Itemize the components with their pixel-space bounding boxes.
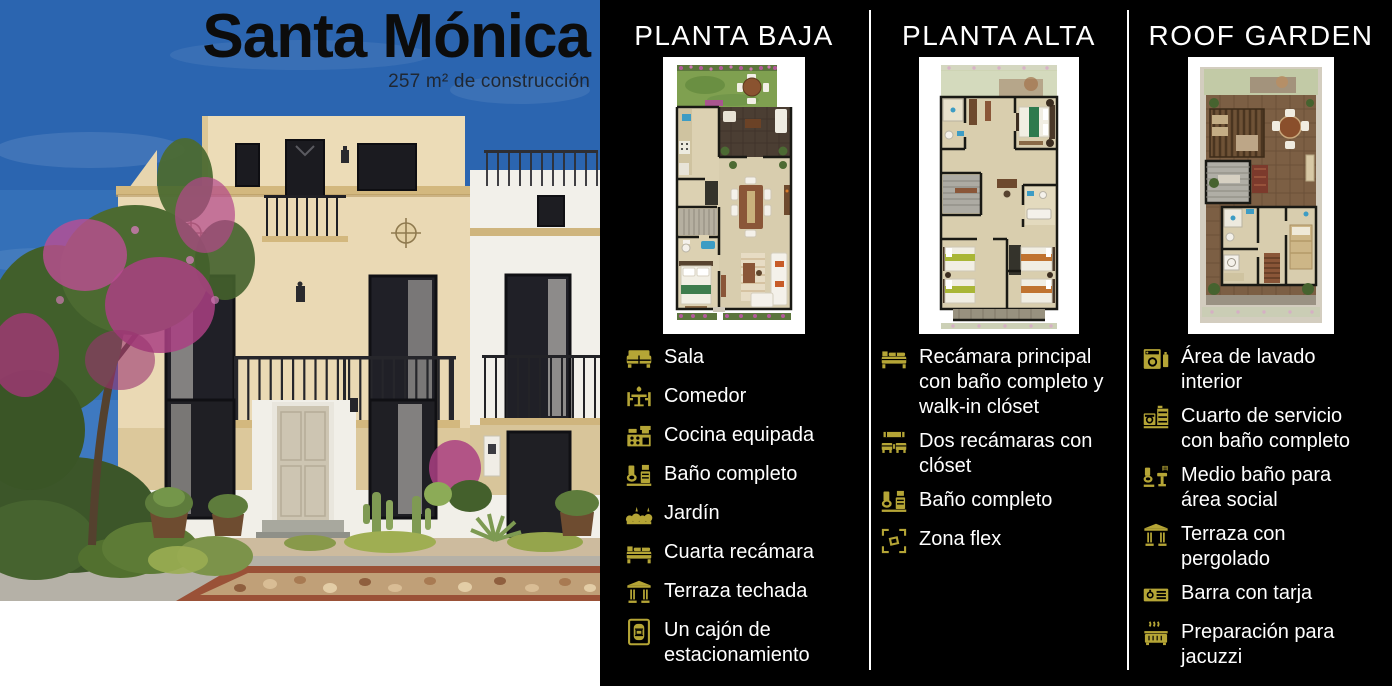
- feature-item: Dos recámaras con clóset: [880, 429, 1126, 479]
- feature-item: Área de lavado interior: [1142, 345, 1392, 395]
- feature-item: Un cajón de estacionamiento: [625, 618, 868, 668]
- column-roof-garden: ROOF GARDEN: [1130, 0, 1392, 686]
- column-header-planta-alta: PLANTA ALTA: [872, 20, 1126, 52]
- floorplans-panel: PLANTA BAJA: [600, 0, 1392, 686]
- feature-label: Dos recámaras con clóset: [919, 429, 1119, 479]
- feature-item: Terraza con pergolado: [1142, 522, 1392, 572]
- title-block: Santa Mónica 257 m² de construcción: [202, 4, 590, 93]
- bathroom-icon: [880, 488, 910, 518]
- pergola-icon: [1142, 522, 1172, 552]
- jacuzzi-icon: [1142, 620, 1172, 650]
- feature-label: Área de lavado interior: [1181, 345, 1371, 395]
- column-divider: [869, 10, 871, 670]
- feature-label: Cuarto de servicio con baño completo: [1181, 404, 1371, 454]
- feature-label: Comedor: [664, 384, 746, 409]
- feature-item: Jardín: [625, 501, 868, 531]
- feature-label: Preparación para jacuzzi: [1181, 620, 1371, 670]
- sofa-icon: [625, 345, 655, 375]
- half-bath-icon: [1142, 463, 1172, 493]
- feature-label: Cocina equipada: [664, 423, 814, 448]
- subtitle: 257 m² de construcción: [202, 71, 590, 93]
- planta-baja-floorplan: [663, 57, 805, 334]
- dining-table-icon: [625, 384, 655, 414]
- page-title: Santa Mónica: [202, 4, 590, 69]
- service-room-icon: [1142, 404, 1172, 434]
- feature-item: Terraza techada: [625, 579, 868, 609]
- roof-garden-floorplan: [1188, 57, 1334, 334]
- garden-icon: [625, 501, 655, 531]
- feature-label: Un cajón de estacionamiento: [664, 618, 854, 668]
- feature-label: Zona flex: [919, 527, 1001, 552]
- feature-item: Baño completo: [880, 488, 1126, 518]
- feature-label: Baño completo: [919, 488, 1052, 513]
- bed-icon: [880, 345, 910, 375]
- bed-icon: [625, 540, 655, 570]
- feature-item: Cuarta recámara: [625, 540, 868, 570]
- feature-label: Sala: [664, 345, 704, 370]
- bathroom-icon: [625, 462, 655, 492]
- flex-zone-icon: [880, 527, 910, 557]
- column-planta-alta: PLANTA ALTA: [872, 0, 1126, 686]
- bar-sink-icon: [1142, 581, 1172, 611]
- column-divider: [1127, 10, 1129, 670]
- column-header-roof-garden: ROOF GARDEN: [1130, 20, 1392, 52]
- feature-item: Recámara principal con baño completo y w…: [880, 345, 1126, 420]
- two-beds-icon: [880, 429, 910, 459]
- kitchen-icon: [625, 423, 655, 453]
- feature-label: Barra con tarja: [1181, 581, 1312, 606]
- feature-list-planta-baja: SalaComedorCocina equipadaBaño completoJ…: [600, 345, 868, 668]
- feature-item: Comedor: [625, 384, 868, 414]
- laundry-icon: [1142, 345, 1172, 375]
- column-planta-baja: PLANTA BAJA: [600, 0, 868, 686]
- hero-photo: Santa Mónica 257 m² de construcción: [0, 0, 600, 601]
- feature-item: Medio baño para área social: [1142, 463, 1392, 513]
- feature-label: Recámara principal con baño completo y w…: [919, 345, 1119, 420]
- feature-item: Sala: [625, 345, 868, 375]
- planta-alta-floorplan: [919, 57, 1079, 334]
- feature-label: Medio baño para área social: [1181, 463, 1371, 513]
- feature-item: Baño completo: [625, 462, 868, 492]
- feature-label: Terraza techada: [664, 579, 807, 604]
- feature-label: Cuarta recámara: [664, 540, 814, 565]
- feature-list-planta-alta: Recámara principal con baño completo y w…: [872, 345, 1126, 557]
- feature-list-roof-garden: Área de lavado interiorCuarto de servici…: [1130, 345, 1392, 670]
- feature-item: Cocina equipada: [625, 423, 868, 453]
- feature-item: Preparación para jacuzzi: [1142, 620, 1392, 670]
- flyer: Santa Mónica 257 m² de construcción PLAN…: [0, 0, 1392, 686]
- car-parking-icon: [625, 618, 655, 648]
- pergola-icon: [625, 579, 655, 609]
- feature-item: Zona flex: [880, 527, 1126, 557]
- feature-item: Cuarto de servicio con baño completo: [1142, 404, 1392, 454]
- feature-label: Baño completo: [664, 462, 797, 487]
- feature-item: Barra con tarja: [1142, 581, 1392, 611]
- column-header-planta-baja: PLANTA BAJA: [600, 20, 868, 52]
- feature-label: Jardín: [664, 501, 720, 526]
- feature-label: Terraza con pergolado: [1181, 522, 1371, 572]
